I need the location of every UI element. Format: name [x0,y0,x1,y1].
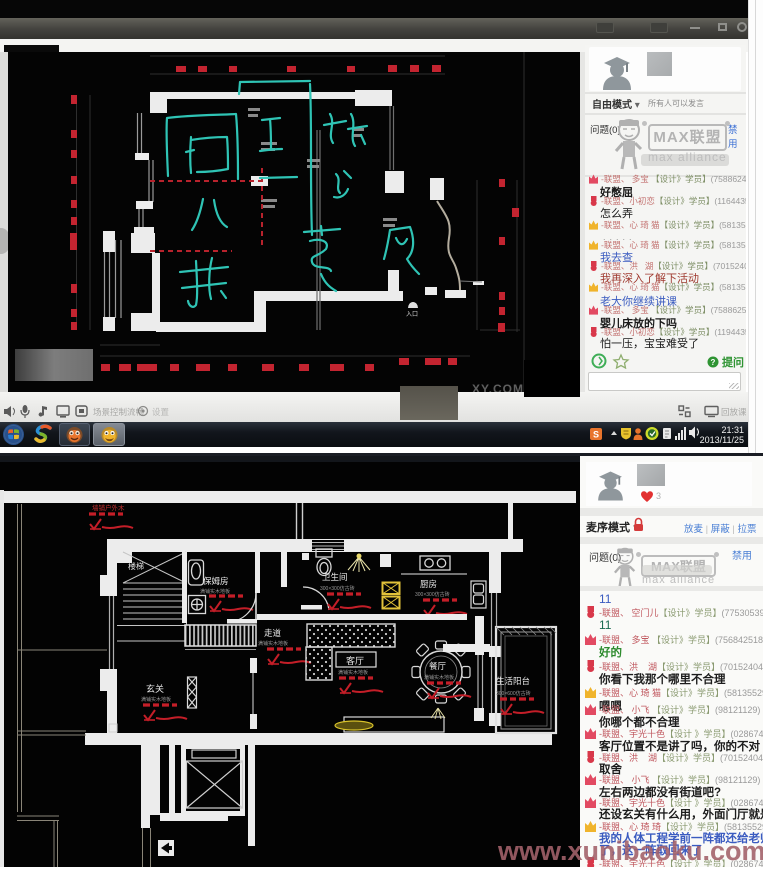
svg-text:满铺实木地板: 满铺实木地板 [424,674,454,681]
svg-text:保姆房: 保姆房 [203,576,229,586]
svg-text:客厅: 客厅 [346,655,364,666]
svg-text:走道: 走道 [264,628,282,638]
svg-text:餐厅: 餐厅 [429,661,447,671]
svg-text:300×600仿古砖: 300×600仿古砖 [496,690,531,697]
svg-text:厨房: 厨房 [420,579,437,589]
svg-text:满铺实木地板: 满铺实木地板 [338,669,368,676]
svg-text:玄关: 玄关 [146,683,164,694]
svg-text:卫生间: 卫生间 [322,572,348,582]
svg-text:设置: 设置 [152,407,170,417]
svg-text:满铺实木地板: 满铺实木地板 [141,696,171,703]
svg-text:场景控制流畅: 场景控制流畅 [93,407,145,417]
svg-text:回放课件: 回放课件 [721,407,746,417]
svg-text:?: ? [711,358,716,367]
svg-text:XY.COM: XY.COM [472,382,524,392]
svg-text:生活阳台: 生活阳台 [496,676,530,686]
svg-text:墙铺户外木: 墙铺户外木 [92,503,125,512]
svg-text:300×300仿古砖: 300×300仿古砖 [320,585,355,592]
svg-text:S: S [593,430,599,440]
svg-text:楼梯: 楼梯 [128,561,144,571]
svg-text:满铺实木地板: 满铺实木地板 [258,640,288,647]
svg-text:300×300仿古砖: 300×300仿古砖 [415,591,450,598]
svg-text:入口: 入口 [406,311,418,318]
svg-text:满铺实木地板: 满铺实木地板 [200,588,230,595]
